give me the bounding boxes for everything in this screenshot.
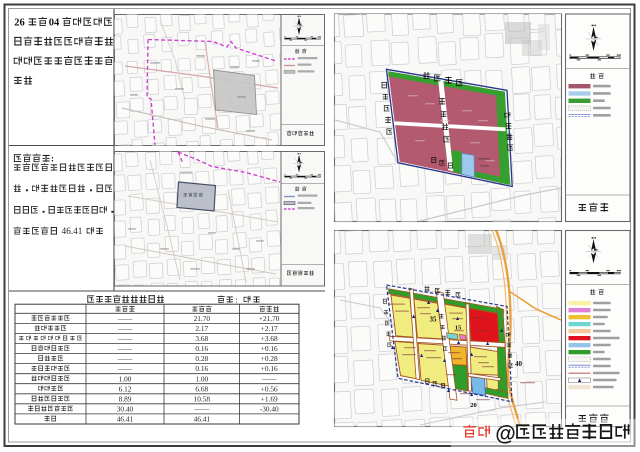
svg-text:——: —— <box>117 324 133 333</box>
svg-text:35: 35 <box>430 316 438 324</box>
svg-text:+2.17: +2.17 <box>261 324 278 333</box>
svg-text:30.40: 30.40 <box>117 405 134 414</box>
svg-text:@: @ <box>495 423 515 446</box>
svg-text:1.00: 1.00 <box>119 374 132 383</box>
svg-text:46.41: 46.41 <box>62 226 83 236</box>
svg-text:15: 15 <box>455 325 462 332</box>
svg-text:+3.68: +3.68 <box>261 334 278 343</box>
svg-text:1.00: 1.00 <box>195 374 208 383</box>
svg-text:——: —— <box>261 374 277 383</box>
svg-text:04: 04 <box>49 18 60 29</box>
svg-text:20: 20 <box>470 402 477 409</box>
svg-text:——: —— <box>194 405 210 414</box>
svg-text:+21.70: +21.70 <box>259 314 280 323</box>
svg-text:3.68: 3.68 <box>195 334 208 343</box>
svg-text:40: 40 <box>515 360 523 368</box>
svg-text:——: —— <box>117 314 133 323</box>
svg-text:6.12: 6.12 <box>119 384 132 393</box>
svg-text:——: —— <box>117 364 133 373</box>
svg-text:46.41: 46.41 <box>194 415 211 424</box>
svg-text:——: —— <box>117 334 133 343</box>
svg-text:——: —— <box>117 344 133 353</box>
svg-text:——: —— <box>117 354 133 363</box>
svg-text:+0.16: +0.16 <box>261 344 278 353</box>
svg-text:+1.69: +1.69 <box>261 394 278 403</box>
svg-text:6.68: 6.68 <box>195 384 208 393</box>
svg-text:2.17: 2.17 <box>195 324 208 333</box>
svg-text:10.58: 10.58 <box>194 394 211 403</box>
svg-text:+0.56: +0.56 <box>261 384 278 393</box>
svg-text:46.41: 46.41 <box>117 415 134 424</box>
svg-text:0.16: 0.16 <box>195 344 208 353</box>
svg-text:8.89: 8.89 <box>119 394 132 403</box>
svg-text:26: 26 <box>14 18 25 29</box>
svg-text::: : <box>235 295 237 305</box>
svg-text:0.28: 0.28 <box>195 354 208 363</box>
svg-text::: : <box>51 154 54 164</box>
svg-text:+0.28: +0.28 <box>261 354 278 363</box>
svg-text:0.16: 0.16 <box>195 364 208 373</box>
svg-text:-30.40: -30.40 <box>260 405 279 414</box>
svg-text:+0.16: +0.16 <box>261 364 278 373</box>
svg-text:21.70: 21.70 <box>194 314 211 323</box>
